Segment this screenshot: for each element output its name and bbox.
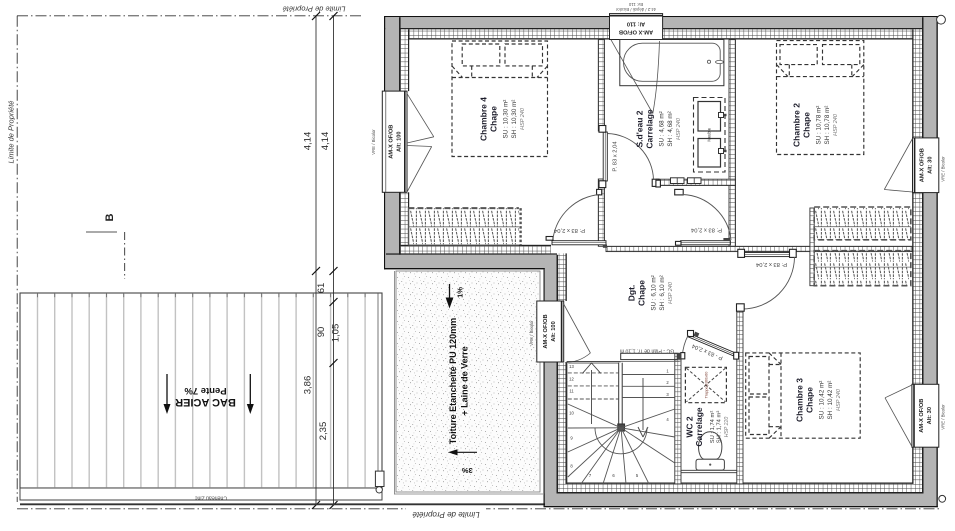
svg-text:Dgt.: Dgt.	[627, 285, 637, 302]
svg-text:SU : 10,78 m²: SU : 10,78 m²	[816, 106, 823, 145]
svg-text:3%: 3%	[462, 466, 473, 475]
svg-text:HSP 240: HSP 240	[520, 107, 526, 130]
svg-text:10: 10	[569, 411, 574, 416]
svg-text:B: B	[104, 213, 116, 221]
svg-text:HSP 240: HSP 240	[676, 117, 682, 140]
svg-text:HSP 220: HSP 220	[724, 417, 730, 438]
svg-text:SU : 4,68 m²: SU : 4,68 m²	[659, 111, 666, 146]
svg-text:2,35: 2,35	[318, 422, 329, 441]
svg-text:GC - Plan de Tr. 1,10 m: GC - Plan de Tr. 1,10 m	[620, 347, 675, 353]
svg-text:Carrelage: Carrelage	[645, 109, 655, 148]
svg-text:AM-X OF/OB: AM-X OF/OB	[543, 314, 549, 348]
svg-text:AM-X OF/OB: AM-X OF/OB	[619, 29, 653, 35]
svg-text:Pente 7%: Pente 7%	[184, 385, 227, 396]
svg-text:4,14: 4,14	[320, 132, 331, 151]
svg-text:AM-X OF/OB: AM-X OF/OB	[920, 148, 926, 182]
svg-text:Chambre 2: Chambre 2	[792, 103, 802, 147]
svg-text:Chambre 4: Chambre 4	[479, 97, 489, 141]
svg-text:SU : 6,10 m²: SU : 6,10 m²	[651, 275, 658, 310]
svg-text:61: 61	[316, 283, 327, 294]
svg-text:13: 13	[569, 364, 574, 369]
svg-text:4,14: 4,14	[303, 132, 314, 151]
svg-text:+ Laine de Verre: + Laine de Verre	[460, 346, 470, 415]
svg-text:P: 83 x 2,04: P: 83 x 2,04	[755, 261, 787, 267]
svg-text:VRE / Bicolor: VRE / Bicolor	[941, 156, 946, 182]
svg-text:S.d'eau 2: S.d'eau 2	[635, 110, 645, 147]
svg-text:VRE / Bicolor: VRE / Bicolor	[371, 129, 376, 155]
svg-text:Al: 110: Al: 110	[627, 21, 645, 27]
svg-text:BAC ACIER: BAC ACIER	[175, 396, 236, 408]
svg-text:AM-X OF/OB: AM-X OF/OB	[389, 125, 395, 159]
svg-text:VRE / Bicolor: VRE / Bicolor	[529, 320, 534, 346]
svg-text:3,86: 3,86	[303, 376, 314, 395]
svg-text:SH : 10,42 m²: SH : 10,42 m²	[827, 381, 834, 420]
svg-text:WC 2: WC 2	[685, 416, 695, 438]
svg-text:P: 83 x 2,04: P: 83 x 2,04	[690, 227, 722, 233]
svg-text:Meuble: Meuble	[707, 127, 712, 141]
svg-text:90: 90	[316, 327, 327, 338]
svg-text:Alt: 100: Alt: 100	[551, 321, 557, 342]
svg-text:1%: 1%	[456, 287, 465, 298]
svg-text:SU : 10,42 m²: SU : 10,42 m²	[819, 381, 826, 420]
svg-text:HSP 240: HSP 240	[836, 388, 842, 411]
svg-text:Chambre 3: Chambre 3	[795, 378, 805, 422]
svg-text:SH : 6,10 m²: SH : 6,10 m²	[659, 275, 666, 310]
svg-text:Limite de Propriété: Limite de Propriété	[412, 510, 480, 519]
svg-text:11: 11	[569, 389, 574, 394]
svg-text:Carrelage: Carrelage	[694, 407, 704, 446]
svg-text:Chape: Chape	[637, 280, 647, 306]
svg-text:Chéneau Zinc: Chéneau Zinc	[194, 494, 227, 500]
svg-text:SU : 1,74 m²: SU : 1,74 m²	[710, 411, 716, 444]
svg-text:P. 83 x 2,04: P. 83 x 2,04	[612, 141, 618, 172]
svg-text:12: 12	[569, 377, 574, 382]
svg-text:Trappe(s)60x60: Trappe(s)60x60	[705, 372, 709, 399]
svg-text:SH : 10,78 m²: SH : 10,78 m²	[824, 106, 831, 145]
svg-text:SU : 10,30 m²: SU : 10,30 m²	[503, 100, 510, 139]
svg-text:Chape: Chape	[805, 387, 815, 413]
svg-text:Limite de Propriété: Limite de Propriété	[283, 5, 346, 14]
svg-text:SH : 4,68 m²: SH : 4,68 m²	[667, 111, 674, 146]
svg-text:Bv: 110: Bv: 110	[628, 2, 643, 7]
svg-text:AM-X OF/OB: AM-X OF/OB	[919, 399, 925, 433]
svg-text:Alt: 30: Alt: 30	[927, 407, 933, 424]
svg-text:1,05: 1,05	[331, 324, 342, 343]
svg-text:HSP 240: HSP 240	[833, 113, 839, 136]
svg-text:Toiture Etancheïté PU 120mm: Toiture Etancheïté PU 120mm	[448, 318, 458, 444]
svg-text:Limite de Propriété: Limite de Propriété	[7, 101, 16, 164]
svg-text:SH : 10,30 m²: SH : 10,30 m²	[511, 100, 518, 139]
svg-text:Alt: 30: Alt: 30	[928, 157, 934, 174]
svg-text:Chape: Chape	[489, 106, 499, 132]
svg-text:Chape: Chape	[802, 112, 812, 138]
svg-text:P: 83 x 2,04: P: 83 x 2,04	[553, 227, 585, 233]
svg-text:SH : 1,74 m²: SH : 1,74 m²	[717, 411, 723, 444]
svg-text:VRE / Bicolor: VRE / Bicolor	[941, 404, 946, 430]
svg-text:Alt: 100: Alt: 100	[397, 131, 403, 152]
svg-text:HSP 240: HSP 240	[668, 281, 674, 304]
